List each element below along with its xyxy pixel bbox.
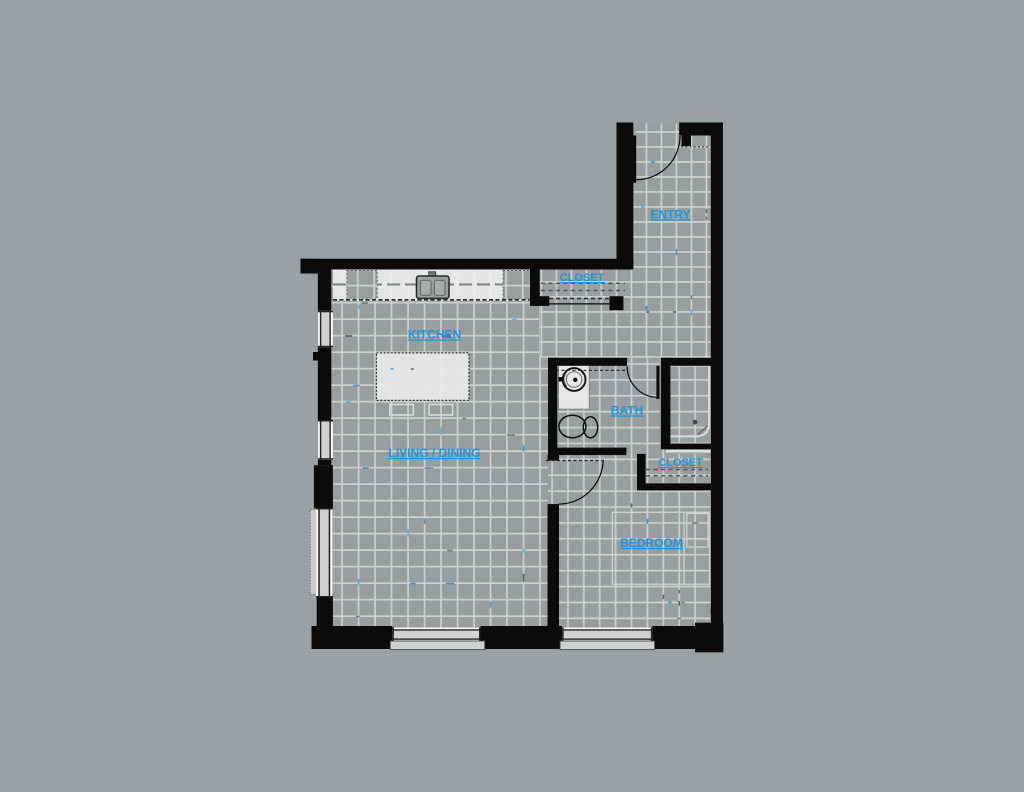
svg-text:KITCHEN: KITCHEN <box>408 328 461 342</box>
svg-text:CLOSET: CLOSET <box>560 272 605 284</box>
svg-text:CLOSET: CLOSET <box>658 457 703 469</box>
svg-text:ENTRY: ENTRY <box>650 208 690 222</box>
svg-text:BATH: BATH <box>611 404 643 418</box>
svg-text:BEDROOM: BEDROOM <box>620 536 683 550</box>
svg-text:LIVING / DINING: LIVING / DINING <box>388 446 480 460</box>
